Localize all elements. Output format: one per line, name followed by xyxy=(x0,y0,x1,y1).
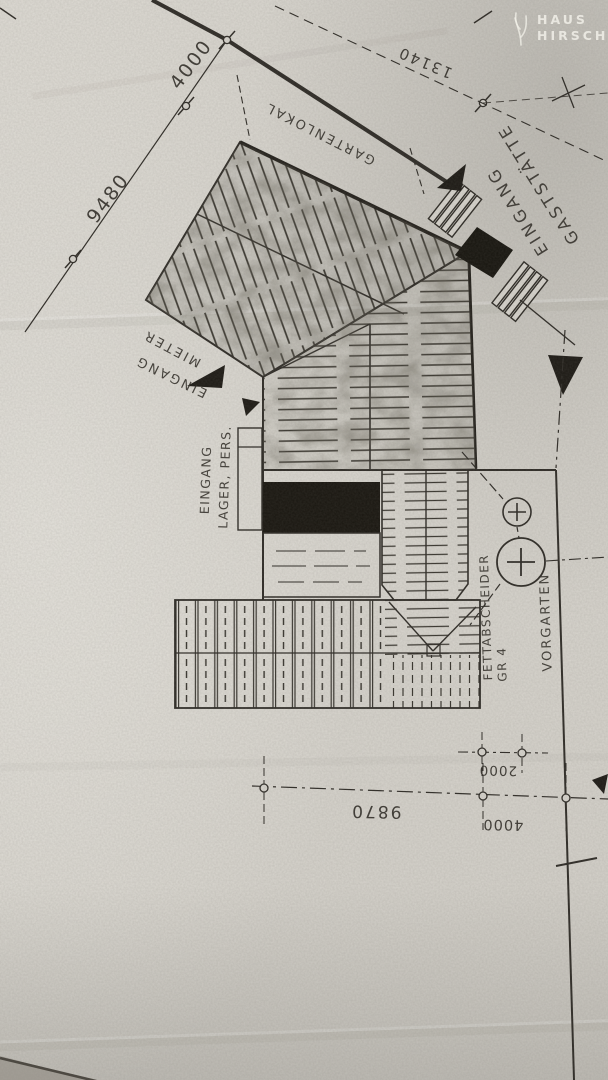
watermark-line1: HAUS xyxy=(537,12,588,27)
watermark-line2: HIRSCH xyxy=(537,28,608,43)
photo-artifacts xyxy=(0,0,608,1080)
site-plan-drawing: 4000 9480 13140 GARTENLOKAL EINGANG GAST… xyxy=(0,0,608,1080)
site-plan-photo: 4000 9480 13140 GARTENLOKAL EINGANG GAST… xyxy=(0,0,608,1080)
film-grain xyxy=(0,0,608,1080)
